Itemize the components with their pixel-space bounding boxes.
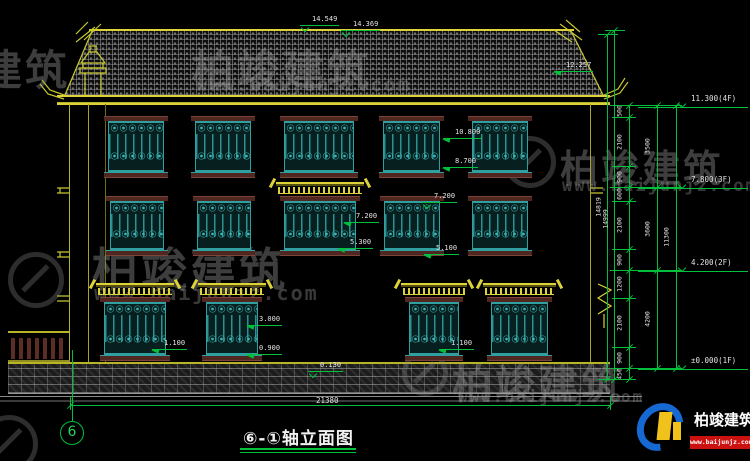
dim-extension-line (605, 30, 625, 31)
canopy-beam (276, 182, 364, 186)
elevation-label: 5.100 (436, 244, 457, 254)
elevation-label: 7.200 (356, 212, 377, 222)
window-sill (468, 250, 532, 256)
window-lattice (383, 121, 440, 172)
window-lattice (197, 201, 251, 250)
title-underline (240, 448, 356, 450)
window-floor-2 (110, 196, 164, 256)
elevation-label: 0.130 (320, 361, 341, 371)
window-sill (191, 172, 255, 178)
brand-corner: 柏竣建筑 www.baijunjz.com (632, 398, 750, 461)
elevation-label: 7.200 (434, 192, 455, 202)
dim-value: 900 (617, 254, 624, 266)
window-floor-3 (108, 116, 164, 178)
dim-extension-line (610, 105, 682, 106)
dim-value: 4200 (645, 311, 652, 327)
window-canopy (96, 283, 174, 296)
dim-column-line-2 (676, 105, 677, 368)
window-floor-3 (383, 116, 440, 178)
elevation-label: 10.800 (455, 128, 480, 138)
canopy-beam (96, 283, 174, 287)
window-sill (405, 355, 463, 361)
window-lattice (284, 121, 354, 172)
dim-extension-line (612, 201, 636, 202)
canopy-tiles (200, 288, 264, 295)
watermark-logo-icon (8, 252, 64, 308)
window-lattice (195, 121, 251, 172)
dim-value: 600 (617, 188, 624, 200)
brand-url-banner: www.baijunjz.com (690, 436, 750, 449)
cad-elevation-canvas: 柏竣建筑 柏竣建筑 www.baijunjz.com 柏竣建筑 www.baij… (0, 0, 750, 461)
floor-marker-text: 4.200(2F) (691, 258, 732, 267)
window-floor-2 (384, 196, 440, 256)
window-floor-1 (409, 297, 459, 361)
bottom-dim-line (70, 405, 610, 406)
title-underline-thin (240, 452, 356, 453)
dim-value: 2100 (617, 217, 624, 233)
window-floor-3 (284, 116, 354, 178)
window-lattice (384, 201, 440, 250)
canopy-beam (198, 283, 266, 287)
window-floor-3 (472, 116, 528, 178)
overall-dim-line (614, 30, 615, 379)
axis-bubble-6: 6 (60, 421, 84, 445)
watermark-url: www.baijunjz.com (196, 74, 411, 96)
watermark-text: 柏竣建筑 (0, 37, 70, 98)
window-sill (487, 355, 552, 361)
canopy-tiles (485, 288, 554, 295)
window-canopy (198, 283, 266, 296)
elevation-label: 5.300 (350, 238, 371, 248)
canopy-tiles (278, 187, 362, 194)
dim-column-line-1 (657, 105, 658, 368)
floor-marker-text: 11.300(4F) (691, 94, 736, 103)
dim-extension-line (612, 117, 636, 118)
elevation-label: 0.900 (259, 344, 280, 354)
window-sill (280, 172, 358, 178)
window-floor-3 (195, 116, 251, 178)
window-floor-1 (491, 297, 548, 361)
overall-dim-line (607, 34, 608, 379)
window-floor-2 (284, 196, 356, 256)
porch-railing (8, 331, 70, 362)
chimney-pagoda (80, 46, 106, 95)
elevation-label: 1.100 (164, 339, 185, 349)
canopy-beam (483, 283, 556, 287)
window-canopy (276, 182, 364, 195)
canopy-tiles (98, 288, 172, 295)
window-sill (100, 355, 170, 361)
window-sill (379, 172, 444, 178)
elevation-label: 14.549 (312, 15, 337, 25)
elevation-label: 14.369 (353, 20, 378, 30)
window-floor-2 (472, 196, 528, 256)
dim-extension-line (612, 249, 636, 250)
elevation-label: 1.100 (451, 339, 472, 349)
window-lattice (491, 302, 548, 355)
dim-value: 1200 (617, 276, 624, 292)
dim-extension-line (612, 298, 636, 299)
canopy-tiles (403, 288, 465, 295)
dim-extension-line (70, 396, 71, 410)
wall-edge-left (88, 104, 89, 362)
elevation-label: 8.700 (455, 157, 476, 167)
axis-line-6 (72, 350, 73, 421)
elevation-label: 12.257 (566, 61, 591, 71)
brand-name: 柏竣建筑 (694, 409, 750, 430)
dim-column-line-0 (629, 105, 630, 379)
window-sill (280, 250, 360, 256)
dim-value: 11300 (664, 227, 671, 247)
elevation-label: 3.000 (259, 315, 280, 325)
window-lattice (108, 121, 164, 172)
dim-value: 3500 (645, 138, 652, 154)
dim-value: 2100 (617, 315, 624, 331)
dim-extension-line (598, 379, 636, 380)
window-sill (106, 250, 168, 256)
dim-value: 450 (617, 368, 624, 380)
dim-value: 900 (617, 352, 624, 364)
dim-value: 900 (617, 171, 624, 183)
watermark-url: www.baijunjz.com (458, 387, 644, 406)
dim-extension-line (610, 396, 611, 410)
window-lattice (104, 302, 166, 355)
dim-extension-line (610, 368, 682, 369)
bottom-dim-value: 21380 (316, 396, 339, 405)
ridge-ornament-right (554, 20, 582, 42)
window-sill (380, 250, 444, 256)
window-floor-2 (197, 196, 251, 256)
dim-value: 500 (617, 105, 624, 117)
brand-logo-building (673, 422, 681, 440)
overall-dim-value: 14999 (603, 209, 610, 229)
dim-extension-line (612, 347, 636, 348)
dim-extension-line (610, 270, 682, 271)
window-lattice (110, 201, 164, 250)
window-canopy (401, 283, 467, 296)
floor-marker-text: 7.800(3F) (691, 175, 732, 184)
window-sill (193, 250, 255, 256)
drawing-title: ⑥-①轴立面图 (243, 424, 354, 449)
dim-extension-line (610, 187, 682, 188)
window-sill (468, 172, 532, 178)
wall-edge-left-outer (69, 104, 70, 362)
window-lattice (472, 201, 528, 250)
floor-marker-text: ±0.000(1F) (691, 356, 736, 365)
canopy-beam (401, 283, 467, 287)
downspout-ornament-right (598, 284, 611, 328)
dim-value: 2100 (617, 134, 624, 150)
window-sill (104, 172, 168, 178)
window-lattice (472, 121, 528, 172)
window-canopy (483, 283, 556, 296)
dim-value: 3600 (645, 221, 652, 237)
dim-extension-line (612, 166, 636, 167)
dim-extension-line (598, 34, 618, 35)
